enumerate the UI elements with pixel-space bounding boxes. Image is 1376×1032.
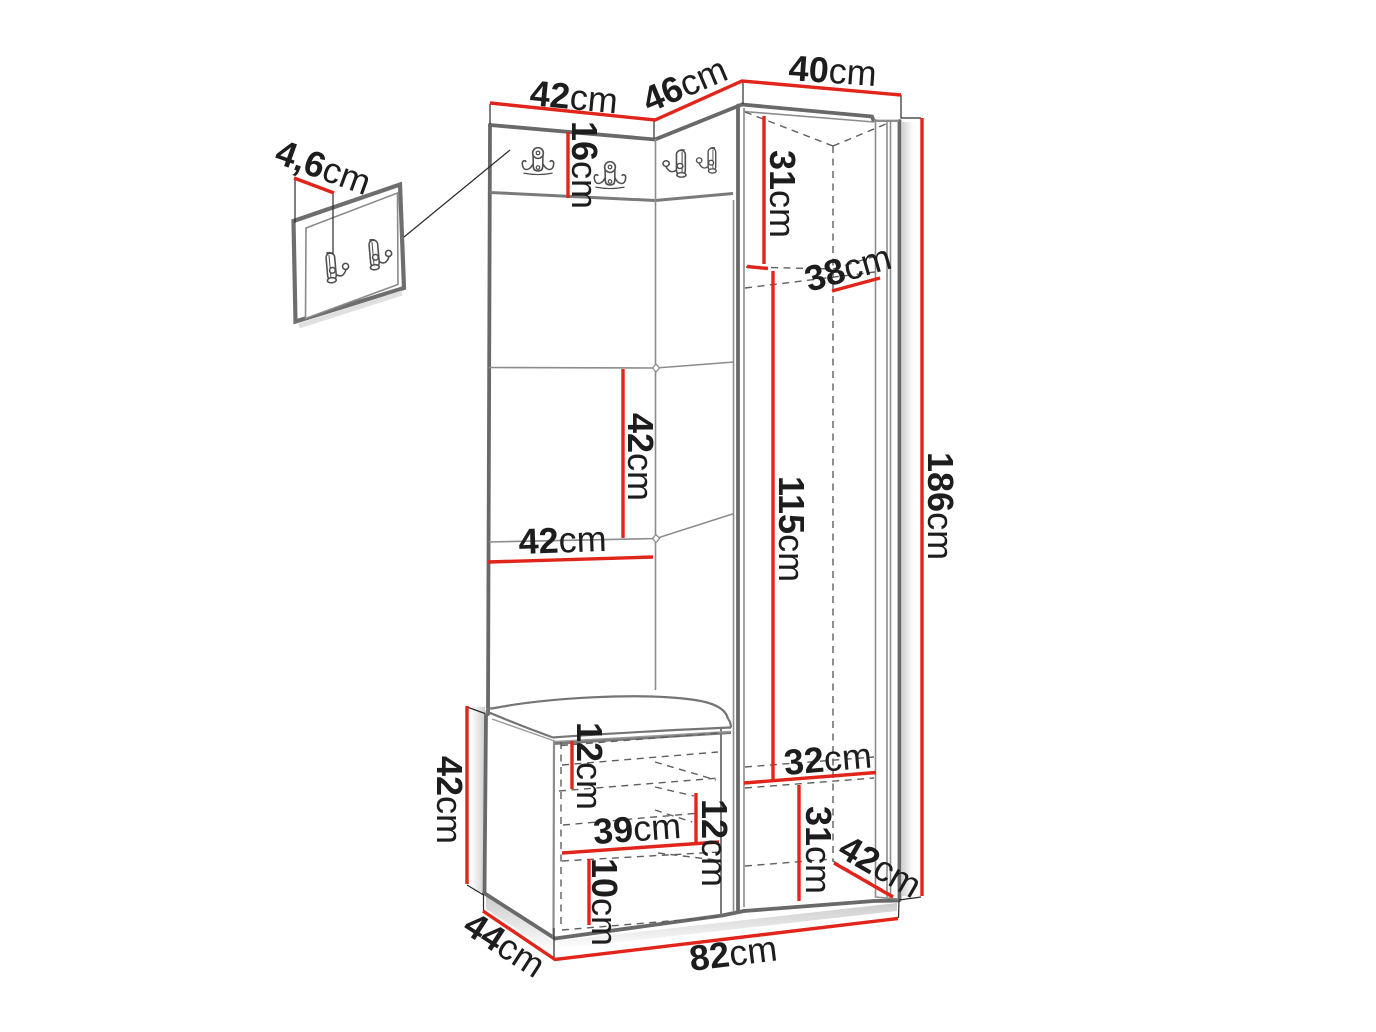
svg-text:31cm: 31cm [798,806,839,894]
svg-text:39cm: 39cm [592,805,683,852]
svg-text:31cm: 31cm [762,150,803,238]
svg-text:42cm: 42cm [620,413,661,501]
svg-text:42cm: 42cm [429,756,470,844]
svg-text:186cm: 186cm [920,452,961,560]
svg-text:42cm: 42cm [528,72,620,121]
svg-text:42cm: 42cm [518,518,607,562]
svg-text:115cm: 115cm [771,476,812,582]
svg-text:12cm: 12cm [569,722,610,810]
svg-text:40cm: 40cm [787,47,878,94]
svg-text:32cm: 32cm [782,734,873,783]
svg-text:16cm: 16cm [564,121,605,209]
svg-text:10cm: 10cm [584,858,625,946]
svg-text:12cm: 12cm [694,799,735,887]
